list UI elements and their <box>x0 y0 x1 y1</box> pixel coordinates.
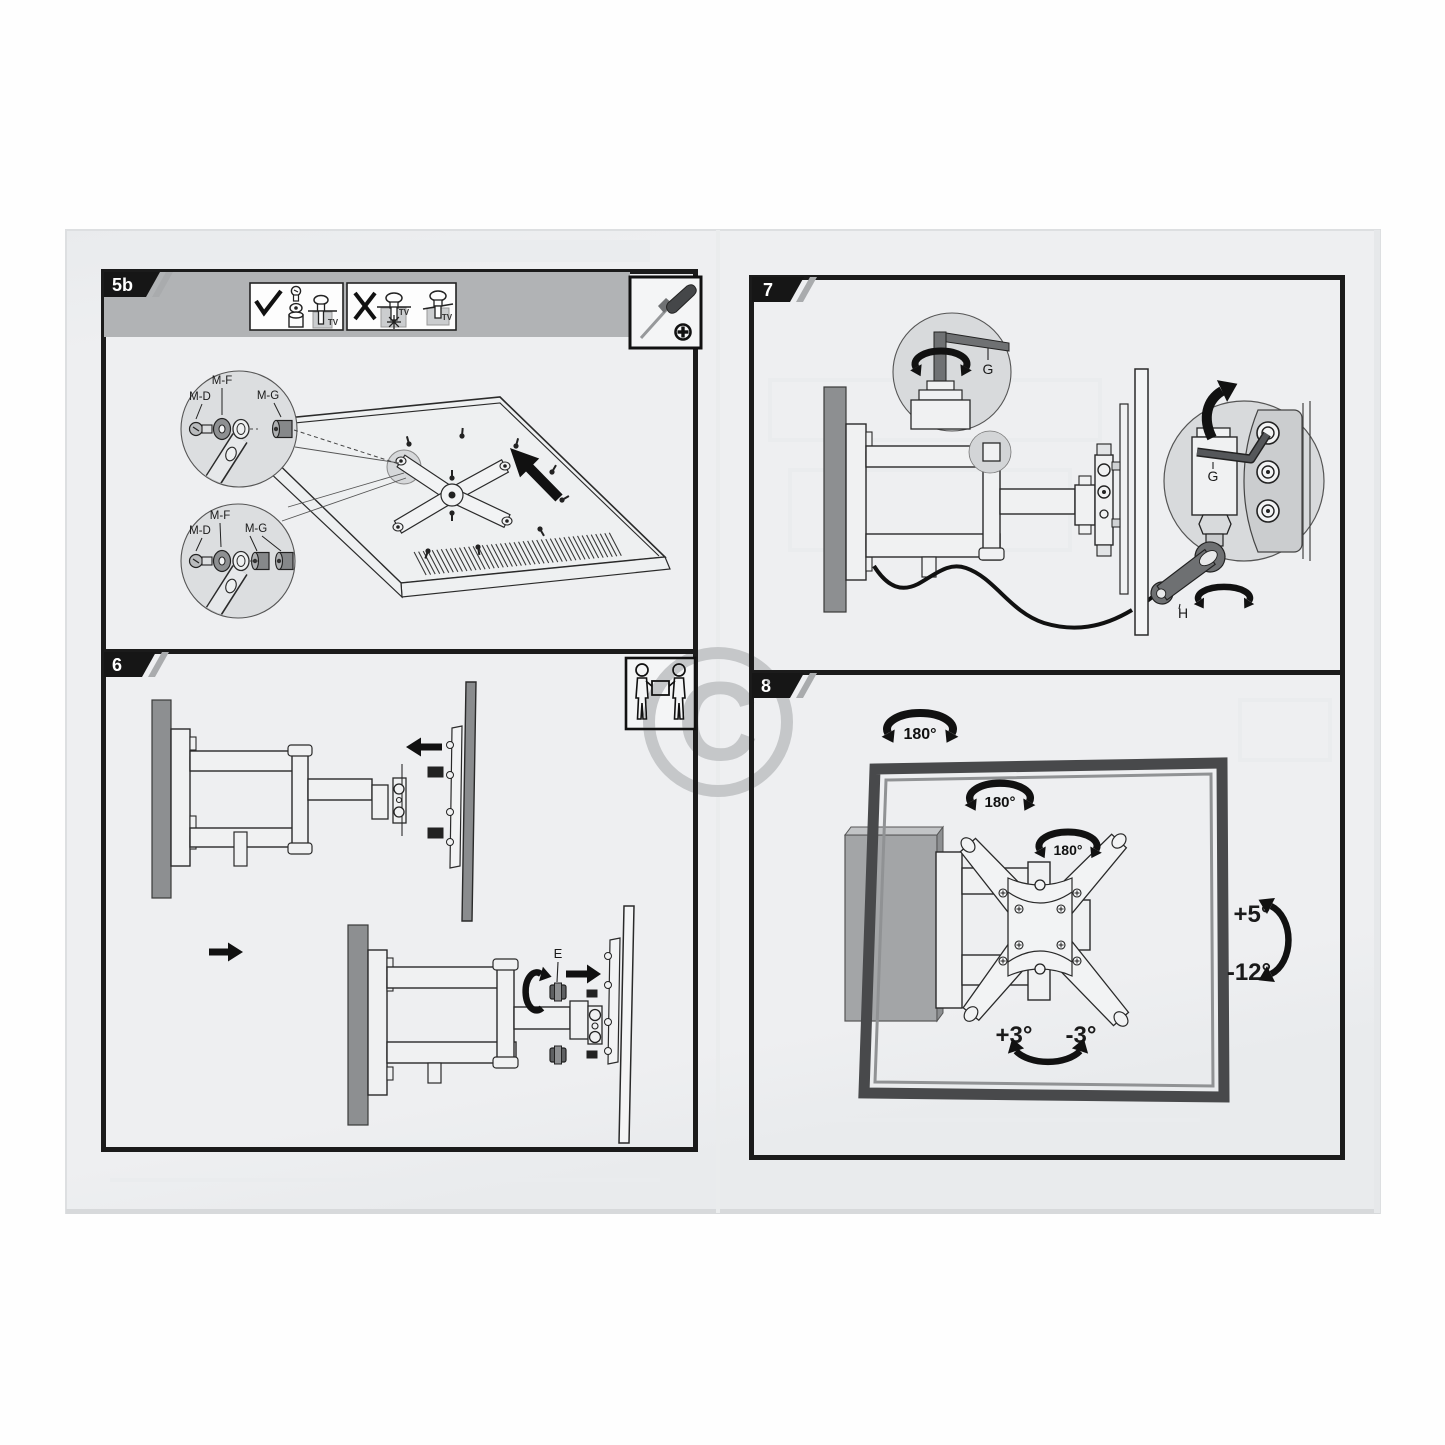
svg-text:M-D: M-D <box>189 391 211 403</box>
svg-text:M-G: M-G <box>257 390 279 402</box>
svg-text:5b: 5b <box>112 275 133 295</box>
svg-text:M-F: M-F <box>212 375 232 387</box>
svg-text:M-G: M-G <box>245 523 267 535</box>
svg-text:TV: TV <box>442 313 453 322</box>
svg-text:M-F: M-F <box>210 510 230 522</box>
svg-text:G: G <box>983 361 994 377</box>
svg-text:180°: 180° <box>903 726 936 743</box>
svg-text:TV: TV <box>399 308 410 317</box>
svg-text:M-D: M-D <box>189 525 211 537</box>
svg-text:7: 7 <box>763 280 773 300</box>
svg-text:180°: 180° <box>984 794 1015 811</box>
svg-text:6: 6 <box>112 655 122 675</box>
svg-text:TV: TV <box>328 318 339 327</box>
svg-text:G: G <box>1208 468 1219 484</box>
svg-text:E: E <box>554 946 563 961</box>
svg-text:180°: 180° <box>1054 842 1083 858</box>
svg-text:C: C <box>678 659 759 784</box>
